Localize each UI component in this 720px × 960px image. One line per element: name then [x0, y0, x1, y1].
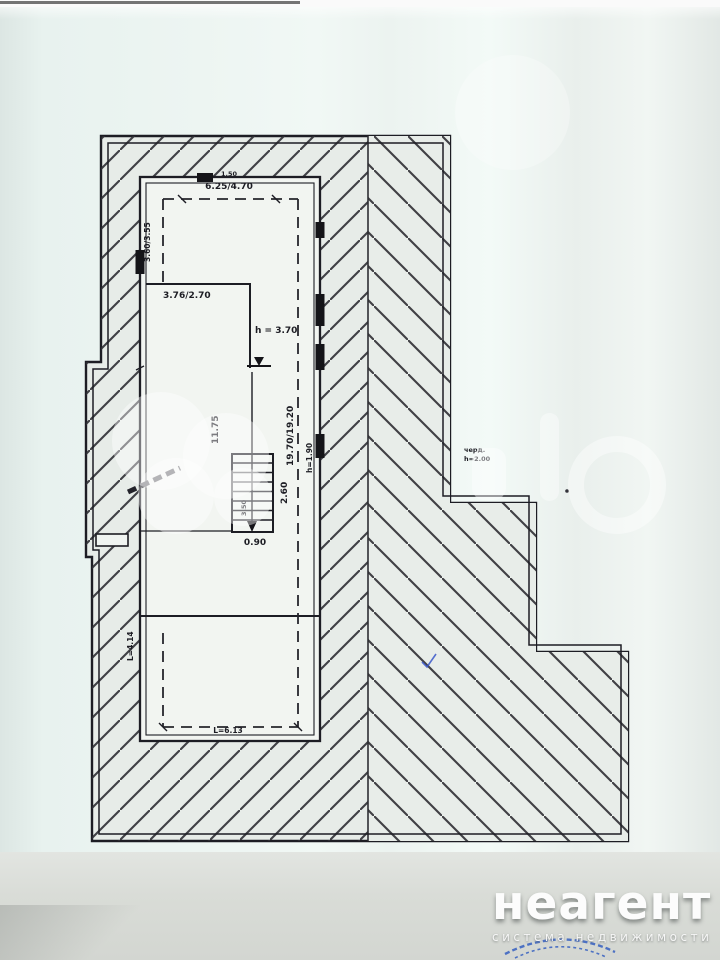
dim-ceiling-low: h=1.90 — [305, 443, 314, 473]
dim-lower-room-height: L=4.14 — [126, 631, 135, 661]
stamp-arc — [505, 939, 615, 958]
dim-top-small: 1.50 — [221, 170, 238, 178]
dim-top-width: 6.25/4.70 — [205, 182, 253, 192]
dim-stairs-flight: 3.50 — [240, 499, 248, 516]
dim-length-left: 11.75 — [211, 416, 221, 444]
dim-lower-room-width: L=6.13 — [213, 726, 243, 735]
floorplan-drawing: 1.50 6.25/4.70 3.60/3.55 3.76/2.70 h = 3… — [0, 0, 720, 960]
dim-stairs-width: 0.90 — [244, 538, 266, 548]
floorplan-photo: 1.50 6.25/4.70 3.60/3.55 3.76/2.70 h = 3… — [0, 0, 720, 960]
dim-room-upper-left: 3.76/2.70 — [163, 291, 211, 301]
dim-left-height: 3.60/3.55 — [143, 222, 152, 262]
ink-dot — [565, 489, 569, 493]
label-attic-1: черд. — [464, 446, 485, 454]
dim-stairs-depth: 2.60 — [280, 482, 290, 504]
roof-right-hatching — [368, 136, 628, 841]
dim-ceiling-main: h = 3.70 — [255, 326, 297, 336]
label-attic-2: h=2.00 — [464, 455, 491, 463]
dim-length-right: 19.70/19.20 — [286, 406, 296, 466]
left-ledge — [96, 534, 128, 546]
